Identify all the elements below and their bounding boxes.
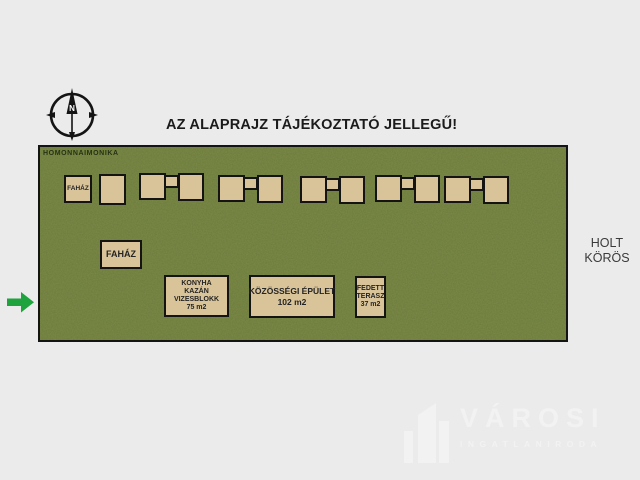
- cabin-connector: [164, 175, 179, 188]
- cabin-connector: [243, 177, 258, 190]
- site-plan-field: HOMONNAIMONIKA FAHÁZ FAHÁZ KONYHA KAZÁN …: [38, 145, 568, 342]
- cabin-unlabeled: [99, 174, 126, 205]
- building-logo-icon: [402, 401, 450, 465]
- cabin-pair-4: [375, 175, 440, 203]
- cabin-pair-3: [300, 176, 365, 204]
- cabin-pair-2: [218, 175, 283, 203]
- cabin-connector: [469, 178, 484, 191]
- terrace-building: FEDETT TERASZ 37 m2: [355, 276, 386, 318]
- cabin-unit-right: [414, 175, 440, 203]
- compass-north-icon: N: [42, 84, 102, 144]
- kitchen-building: KONYHA KAZÁN VIZESBLOKK 75 m2: [164, 275, 229, 317]
- cabin-unit-right: [257, 175, 283, 203]
- river-label-line1: HOLT: [581, 236, 633, 251]
- community-area-value: 102 m2: [278, 297, 307, 307]
- agency-logo: VÁROSI INGATLANIRODA: [400, 399, 615, 465]
- cabin-large: FAHÁZ: [100, 240, 142, 269]
- cabin-small-label: FAHÁZ: [67, 185, 89, 193]
- cabin-unit-right: [178, 173, 204, 201]
- cabin-unit-right: [483, 176, 509, 204]
- cabin-pair-1: [139, 173, 204, 201]
- terrace-label-line: TERASZ: [357, 293, 385, 301]
- community-label: KÖZÖSSÉGI ÉPÜLET: [249, 286, 335, 296]
- cabin-pair-5: [444, 176, 509, 204]
- kitchen-label-line: VIZESBLOKK: [174, 296, 219, 304]
- compass-north-letter: N: [69, 104, 75, 113]
- kitchen-label-line: KONYHA: [181, 280, 211, 288]
- cabin-unit-left: [444, 176, 471, 203]
- cabin-unit-left: [375, 175, 402, 202]
- logo-brand-text: VÁROSI: [460, 405, 606, 432]
- kitchen-label-line: KAZÁN: [184, 288, 209, 296]
- kitchen-area-value: 75 m2: [187, 304, 207, 312]
- author-watermark: HOMONNAIMONIKA: [43, 150, 119, 157]
- cabin-unit-left: [218, 175, 245, 202]
- cabin-unit-left: [300, 176, 327, 203]
- river-label-line2: KÖRÖS: [581, 251, 633, 266]
- community-building: KÖZÖSSÉGI ÉPÜLET 102 m2: [249, 275, 335, 318]
- plan-disclaimer-title: AZ ALAPRAJZ TÁJÉKOZTATÓ JELLEGŰ!: [166, 117, 457, 133]
- arrow-right-icon: [7, 291, 35, 313]
- cabin-unit-right: [339, 176, 365, 204]
- terrace-area-value: 37 m2: [361, 301, 381, 309]
- terrace-label-line: FEDETT: [357, 285, 384, 293]
- cabin-connector: [400, 177, 415, 190]
- cabin-unit-left: [139, 173, 166, 200]
- river-label: HOLT KÖRÖS: [581, 236, 633, 266]
- cabin-connector: [325, 178, 340, 191]
- cabin-small: FAHÁZ: [64, 175, 92, 203]
- logo-subtitle-text: INGATLANIRODA: [460, 439, 606, 449]
- cabin-large-label: FAHÁZ: [106, 249, 136, 260]
